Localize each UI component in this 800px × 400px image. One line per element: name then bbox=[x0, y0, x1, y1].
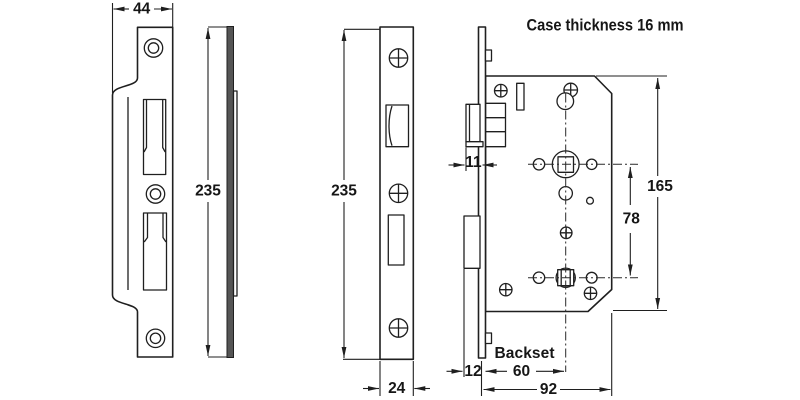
case-screw-bottom-right bbox=[584, 287, 596, 299]
dim-label-forend-height: 235 bbox=[331, 183, 357, 200]
lock-case-forend-edge bbox=[479, 27, 486, 358]
forend-screw-middle bbox=[389, 184, 407, 202]
strike-plate-side-view bbox=[227, 27, 237, 358]
forend-screw-top bbox=[389, 49, 407, 67]
forend-front-view bbox=[380, 27, 413, 359]
dim-label-backset: 60 bbox=[513, 363, 530, 380]
strike-plate-outline bbox=[113, 27, 173, 357]
dim-label-follower-centres: 78 bbox=[623, 211, 641, 228]
dim-label-latch-projection: 11 bbox=[465, 154, 482, 171]
dim-label-strike-height: 235 bbox=[195, 183, 221, 200]
case-screw-top-left bbox=[495, 84, 508, 97]
dim-follower-centres: 78 bbox=[623, 167, 641, 276]
small-hole bbox=[587, 197, 594, 204]
lock-technical-drawing-page: 44 235 bbox=[0, 0, 800, 400]
cylinder-slot bbox=[517, 83, 524, 110]
dim-forend-width: 24 bbox=[363, 361, 430, 397]
strike-side-lip bbox=[234, 91, 238, 296]
latch-bolt-mechanism bbox=[486, 103, 506, 146]
dim-label-case-height: 165 bbox=[647, 178, 673, 195]
strike-plate-front-view bbox=[113, 27, 173, 357]
dim-label-case-depth: 92 bbox=[540, 381, 557, 398]
case-screw-bottom-left bbox=[500, 284, 512, 296]
fixing-tab-top bbox=[486, 50, 492, 61]
dim-label-deadbolt-projection: 12 bbox=[464, 363, 481, 380]
forend-screw-bottom bbox=[389, 319, 407, 337]
dim-deadbolt-projection: 12 bbox=[447, 269, 482, 380]
strike-side-bar bbox=[227, 27, 234, 358]
case-thickness-note: Case thickness 16 mm bbox=[527, 16, 684, 35]
latch-bolt-head bbox=[466, 104, 483, 146]
dim-label-forend-width: 24 bbox=[388, 380, 406, 397]
dim-backset: 60 bbox=[486, 363, 565, 380]
dim-forend-height: 235 bbox=[331, 29, 380, 359]
dim-strike-height: 235 bbox=[195, 27, 227, 357]
dim-label-strike-width: 44 bbox=[133, 1, 151, 18]
fixing-tab-bottom bbox=[486, 333, 492, 344]
lock-technical-drawing: 44 235 bbox=[0, 0, 800, 400]
backset-label: Backset bbox=[495, 345, 555, 362]
dead-bolt-head bbox=[464, 216, 480, 268]
